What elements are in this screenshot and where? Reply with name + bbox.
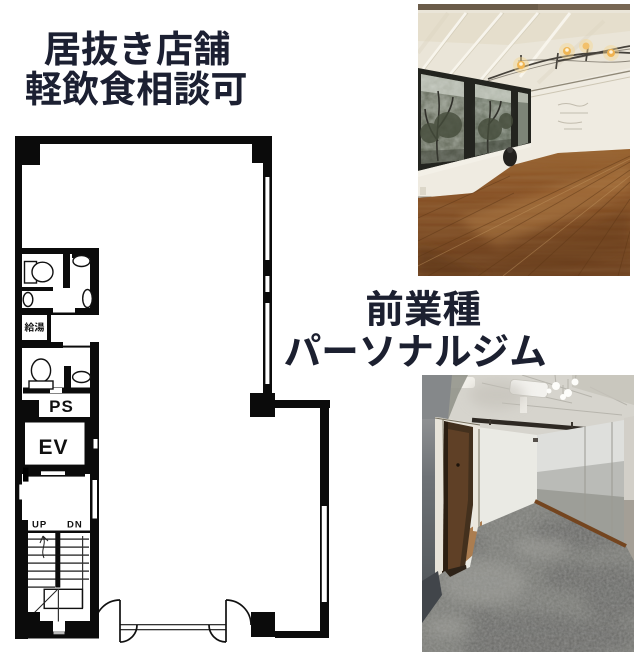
- svg-text:UP: UP: [32, 519, 47, 530]
- svg-text:EV: EV: [38, 436, 68, 459]
- svg-text:DN: DN: [67, 519, 83, 530]
- svg-text:PS: PS: [49, 397, 74, 416]
